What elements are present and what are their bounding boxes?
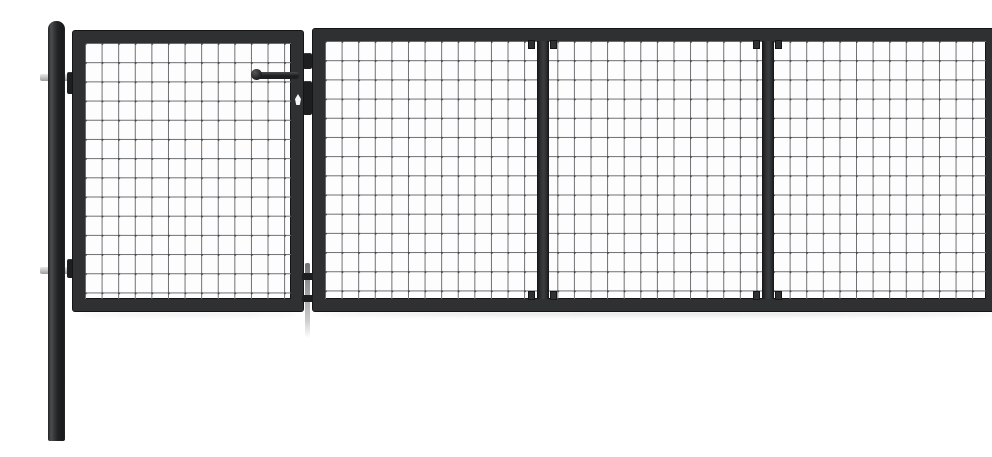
mesh-tab (551, 292, 556, 299)
drop-rod-guide-upper (302, 273, 313, 280)
pedestrian-gate-mesh (85, 43, 291, 299)
latch-catch-block (303, 53, 312, 69)
main-gate-shadow (318, 312, 992, 316)
mesh-tab (529, 292, 534, 299)
gate-divider-2 (762, 41, 774, 299)
drop-rod-guide-lower (302, 295, 313, 302)
pedestrian-gate-shadow (78, 313, 298, 316)
main-gate-panel (313, 29, 992, 311)
mesh-tab (529, 41, 534, 48)
mesh-tab (754, 41, 759, 48)
lock-case (303, 81, 312, 115)
gate-handle-knob (251, 69, 262, 80)
mesh-tab (551, 41, 556, 48)
mesh-tab (776, 292, 781, 299)
gate-divider-1 (537, 41, 549, 299)
mesh-tab (776, 41, 781, 48)
product-photo-canvas (40, 16, 992, 441)
main-gate-mesh (325, 41, 986, 299)
fence-post-left (48, 21, 65, 441)
mesh-tab (754, 292, 759, 299)
